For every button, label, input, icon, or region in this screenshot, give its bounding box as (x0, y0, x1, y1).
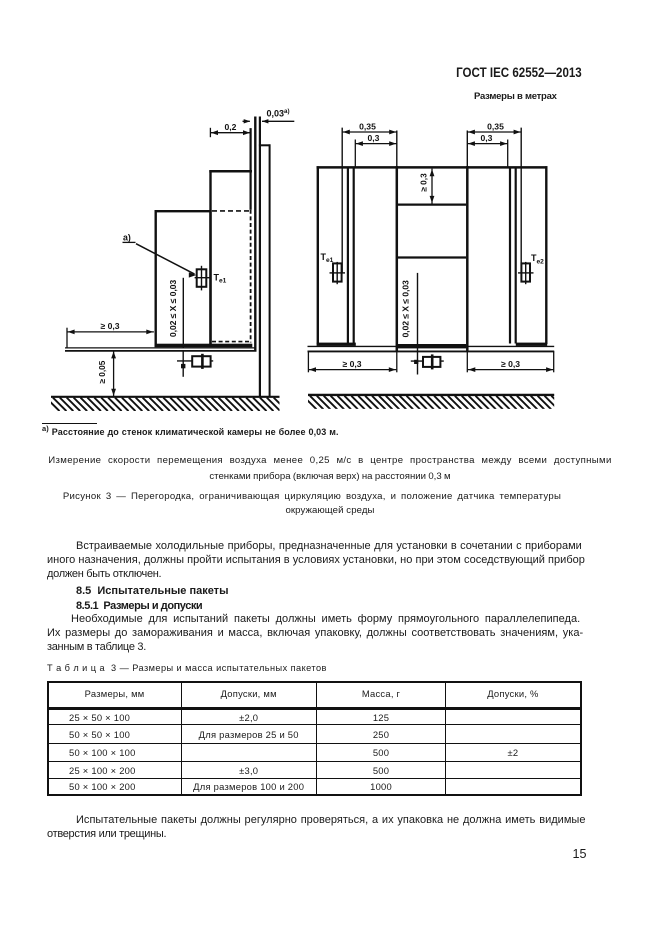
svg-text:≥ 0,3: ≥ 0,3 (501, 359, 520, 369)
svg-text:0,03а): 0,03а) (267, 108, 290, 118)
svg-text:≥ 0,3: ≥ 0,3 (342, 359, 361, 369)
svg-text:Tе1: Tе1 (321, 252, 334, 264)
svg-text:0,3: 0,3 (481, 133, 493, 143)
svg-text:0,02 ≤ X ≤ 0,03: 0,02 ≤ X ≤ 0,03 (401, 280, 411, 338)
svg-text:≥ 0,3: ≥ 0,3 (418, 173, 428, 192)
svg-text:0,2: 0,2 (225, 122, 237, 132)
svg-text:Tе2: Tе2 (531, 253, 544, 265)
svg-text:а): а) (123, 232, 131, 242)
svg-text:0,35: 0,35 (487, 121, 504, 131)
svg-text:≥ 0,3: ≥ 0,3 (100, 321, 119, 331)
svg-text:0,35: 0,35 (359, 121, 376, 131)
svg-text:≥ 0,05: ≥ 0,05 (97, 360, 107, 383)
svg-text:0,3: 0,3 (368, 133, 380, 143)
svg-text:0,02 ≤ X ≤ 0,03: 0,02 ≤ X ≤ 0,03 (168, 280, 178, 338)
svg-text:Tе1: Tе1 (214, 272, 227, 284)
